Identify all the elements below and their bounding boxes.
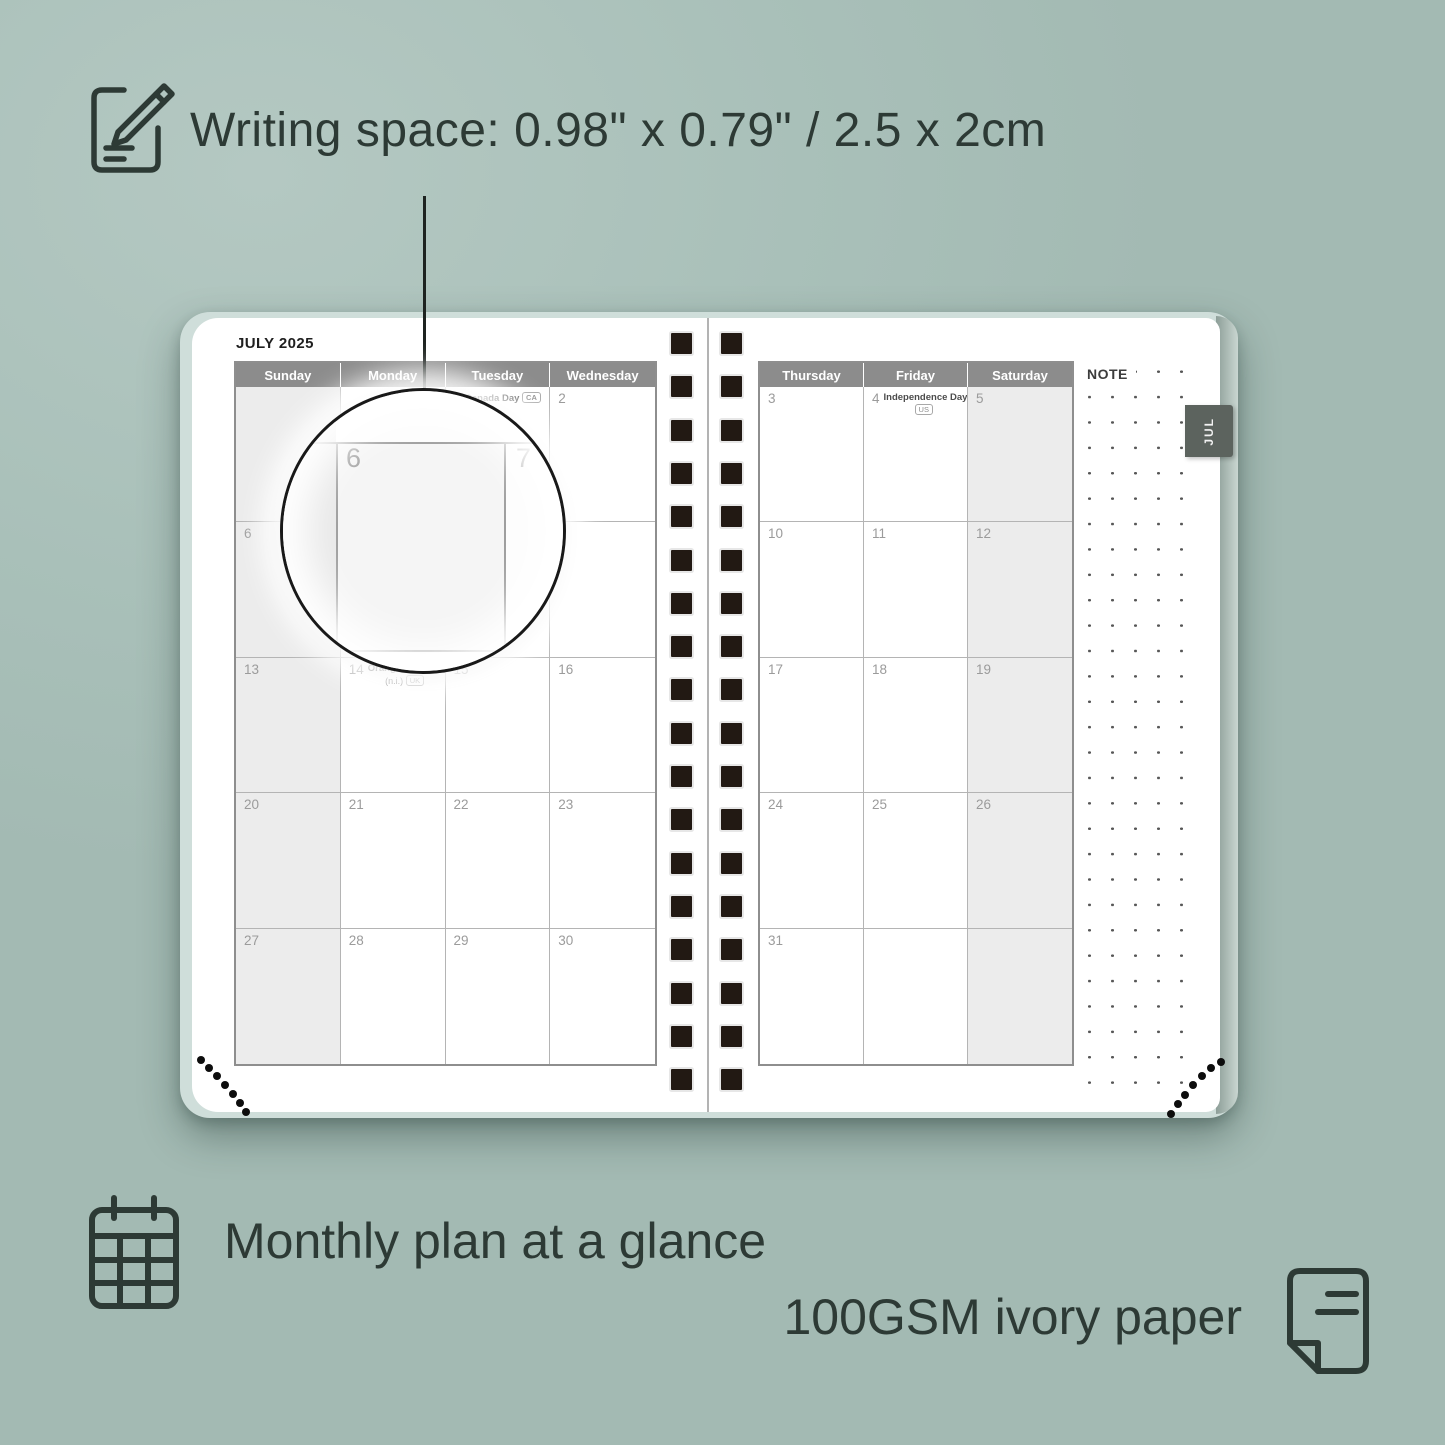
- spiral-hole: [671, 853, 692, 874]
- spiral-hole: [721, 1026, 742, 1047]
- day-cell-13: 13: [236, 658, 341, 793]
- country-badge: UK: [406, 675, 424, 686]
- weekday-header-row: ThursdayFridaySaturday: [760, 363, 1072, 387]
- corner-perforation-dot: [221, 1081, 229, 1089]
- day-number: 12: [976, 527, 991, 541]
- day-cell-14: 14Orangemen's Day (n.i.) UK: [341, 658, 446, 793]
- day-number: 10: [768, 527, 783, 541]
- day-number: 23: [558, 798, 573, 812]
- spiral-hole: [721, 593, 742, 614]
- month-tab-label: JUL: [1202, 417, 1216, 446]
- day-number: 19: [976, 663, 991, 677]
- weekday-header-saturday: Saturday: [968, 363, 1072, 387]
- day-cell-29: 29: [446, 929, 551, 1064]
- day-cell-31: 31: [760, 929, 864, 1064]
- spiral-hole: [721, 636, 742, 657]
- day-number: 11: [872, 527, 886, 541]
- day-number: 31: [768, 934, 783, 948]
- magnifier-circle: 6 7: [280, 388, 566, 674]
- weekday-header-tuesday: Tuesday: [446, 363, 551, 387]
- spiral-hole: [671, 939, 692, 960]
- month-tab-jul: JUL: [1185, 405, 1233, 457]
- day-number: 25: [872, 798, 887, 812]
- day-cell-28: 28: [341, 929, 446, 1064]
- spiral-hole: [671, 593, 692, 614]
- spiral-hole: [721, 463, 742, 484]
- day-number: 24: [768, 798, 783, 812]
- weekday-header-row: SundayMondayTuesdayWednesday: [236, 363, 655, 387]
- corner-perforation-dot: [236, 1099, 244, 1107]
- corner-perforation-dot: [213, 1072, 221, 1080]
- corner-perforation-dot: [1181, 1091, 1189, 1099]
- paper-sheet-icon: [1278, 1266, 1374, 1376]
- day-cell-5: 5: [968, 387, 1072, 522]
- day-cell-12: 12: [968, 522, 1072, 657]
- spiral-hole: [721, 550, 742, 571]
- spiral-hole: [671, 809, 692, 830]
- day-cell-18: 18: [864, 658, 968, 793]
- day-cell-20: 20: [236, 793, 341, 928]
- corner-perforation-dot: [1189, 1081, 1197, 1089]
- day-number: 21: [349, 798, 364, 812]
- spiral-hole: [721, 506, 742, 527]
- day-number: 14: [349, 663, 364, 677]
- spiral-hole: [671, 983, 692, 1004]
- spiral-hole: [671, 679, 692, 700]
- day-cell-21: 21: [341, 793, 446, 928]
- holiday-subline: US: [884, 404, 964, 417]
- spiral-hole: [721, 809, 742, 830]
- spiral-hole: [671, 376, 692, 397]
- spiral-hole: [671, 723, 692, 744]
- day-cell-11: 11: [864, 522, 968, 657]
- day-cell-25: 25: [864, 793, 968, 928]
- corner-perforation-dot: [1174, 1100, 1182, 1108]
- spiral-hole: [721, 1069, 742, 1090]
- monthly-plan-annotation: Monthly plan at a glance: [224, 1212, 766, 1270]
- day-cell-27: 27: [236, 929, 341, 1064]
- note-dot-grid: [1085, 364, 1197, 1104]
- day-number: 26: [976, 798, 991, 812]
- corner-perforation-dot: [1207, 1064, 1215, 1072]
- page-gutter: [707, 318, 709, 1112]
- day-cell-30: 30: [550, 929, 655, 1064]
- spiral-hole: [671, 506, 692, 527]
- day-number: 4: [872, 392, 880, 406]
- day-number: 20: [244, 798, 259, 812]
- day-cell-9: 9: [550, 522, 655, 657]
- day-cell-empty: [864, 929, 968, 1064]
- day-cell-22: 22: [446, 793, 551, 928]
- day-number: 2: [558, 392, 566, 406]
- day-cell-15: 15: [446, 658, 551, 793]
- day-number: 22: [454, 798, 469, 812]
- corner-perforation-dot: [1167, 1110, 1175, 1118]
- weekday-header-thursday: Thursday: [760, 363, 864, 387]
- paper-annotation: 100GSM ivory paper: [752, 1288, 1242, 1346]
- weekday-header-sunday: Sunday: [236, 363, 341, 387]
- spiral-hole: [721, 896, 742, 917]
- spiral-hole: [671, 1026, 692, 1047]
- day-cell-4: 4Independence Day US: [864, 387, 968, 522]
- calendar-body: 34Independence Day US5101112171819242526…: [760, 387, 1072, 1064]
- corner-perforation-dot: [197, 1056, 205, 1064]
- spiral-hole: [721, 333, 742, 354]
- writing-note-pencil-icon: [80, 76, 180, 176]
- weekday-header-wednesday: Wednesday: [550, 363, 655, 387]
- spiral-hole: [671, 766, 692, 787]
- note-label: NOTE: [1087, 364, 1136, 384]
- day-cell-2: 2: [550, 387, 655, 522]
- day-cell-16: 16: [550, 658, 655, 793]
- corner-perforation-dot: [205, 1064, 213, 1072]
- spiral-hole: [721, 983, 742, 1004]
- spiral-hole: [671, 636, 692, 657]
- spiral-hole: [671, 896, 692, 917]
- spiral-hole: [671, 333, 692, 354]
- spiral-hole: [721, 723, 742, 744]
- spiral-hole: [721, 420, 742, 441]
- month-title: JULY 2025: [236, 335, 314, 352]
- day-number: 6: [244, 527, 252, 541]
- corner-perforation-dot: [1217, 1058, 1225, 1066]
- spiral-hole: [721, 376, 742, 397]
- magnified-day-number: 7: [516, 443, 531, 474]
- spiral-hole: [721, 853, 742, 874]
- day-number: 18: [872, 663, 887, 677]
- spiral-hole: [721, 766, 742, 787]
- calendar-icon: [84, 1192, 184, 1314]
- holiday-entry: Independence Day US: [884, 392, 964, 417]
- corner-perforation-dot: [242, 1108, 250, 1116]
- spiral-hole: [721, 679, 742, 700]
- spiral-hole: [671, 550, 692, 571]
- holiday-subline: (n.i.) UK: [368, 675, 442, 688]
- day-number: 27: [244, 934, 259, 948]
- spiral-hole: [671, 463, 692, 484]
- corner-perforation-dot: [229, 1090, 237, 1098]
- day-number: 28: [349, 934, 364, 948]
- day-cell-3: 3: [760, 387, 864, 522]
- day-number: 16: [558, 663, 573, 677]
- day-number: 29: [454, 934, 469, 948]
- day-number: 30: [558, 934, 573, 948]
- corner-perforation-dot: [1198, 1072, 1206, 1080]
- day-number: 17: [768, 663, 783, 677]
- magnified-day-number: 6: [346, 443, 361, 474]
- day-cell-empty: [968, 929, 1072, 1064]
- magnified-writing-cell: [336, 442, 506, 652]
- callout-pointer-line: [423, 196, 426, 393]
- country-badge: US: [915, 404, 933, 415]
- day-number: 13: [244, 663, 259, 677]
- day-number: 3: [768, 392, 776, 406]
- calendar-grid-right: ThursdayFridaySaturday 34Independence Da…: [758, 361, 1074, 1066]
- weekday-header-monday: Monday: [341, 363, 446, 387]
- product-image: Writing space: 0.98" x 0.79" / 2.5 x 2cm…: [0, 0, 1445, 1445]
- holiday-name: Independence Day: [884, 392, 964, 404]
- day-number: 5: [976, 392, 984, 406]
- spiral-hole: [671, 1069, 692, 1090]
- writing-space-annotation: Writing space: 0.98" x 0.79" / 2.5 x 2cm: [190, 103, 1046, 158]
- magnified-shaded-column: [283, 391, 336, 671]
- day-cell-19: 19: [968, 658, 1072, 793]
- spiral-hole: [721, 939, 742, 960]
- day-cell-24: 24: [760, 793, 864, 928]
- spiral-hole: [671, 420, 692, 441]
- day-cell-26: 26: [968, 793, 1072, 928]
- day-cell-17: 17: [760, 658, 864, 793]
- weekday-header-friday: Friday: [864, 363, 968, 387]
- country-badge: CA: [522, 392, 541, 403]
- day-cell-23: 23: [550, 793, 655, 928]
- day-cell-10: 10: [760, 522, 864, 657]
